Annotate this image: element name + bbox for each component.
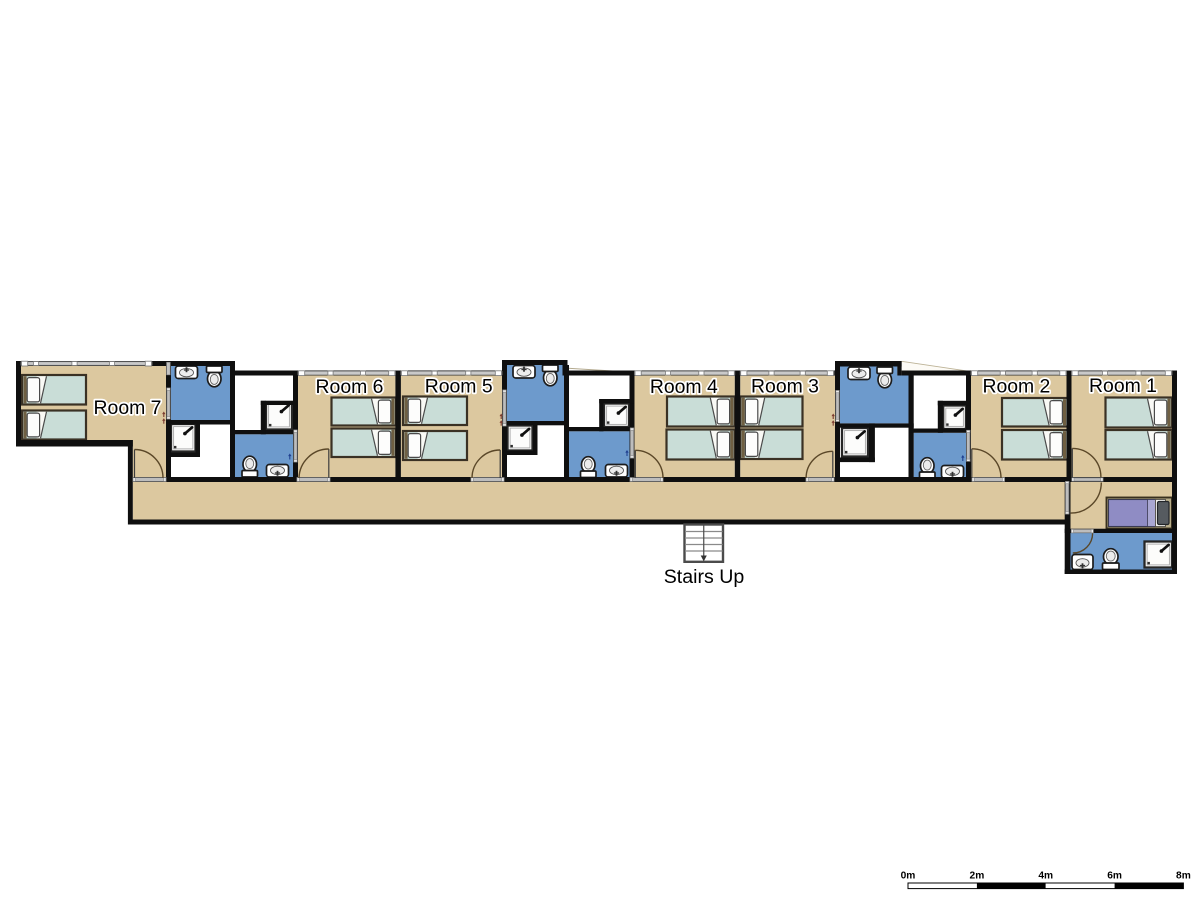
svg-text:0m: 0m [901,871,916,882]
svg-text:Stairs Up: Stairs Up [664,566,745,588]
svg-text:Room 1: Room 1 [1089,375,1157,397]
svg-text:Room 7: Room 7 [94,397,162,419]
svg-text:Room 5: Room 5 [425,375,493,397]
svg-text:Room 2: Room 2 [982,376,1050,398]
svg-text:Room 3: Room 3 [751,375,819,397]
svg-text:Room 6: Room 6 [316,376,384,398]
svg-text:6m: 6m [1107,871,1122,882]
svg-text:8m: 8m [1176,871,1191,882]
svg-text:4m: 4m [1038,871,1053,882]
svg-text:2m: 2m [970,871,985,882]
svg-text:Room 4: Room 4 [650,376,718,398]
